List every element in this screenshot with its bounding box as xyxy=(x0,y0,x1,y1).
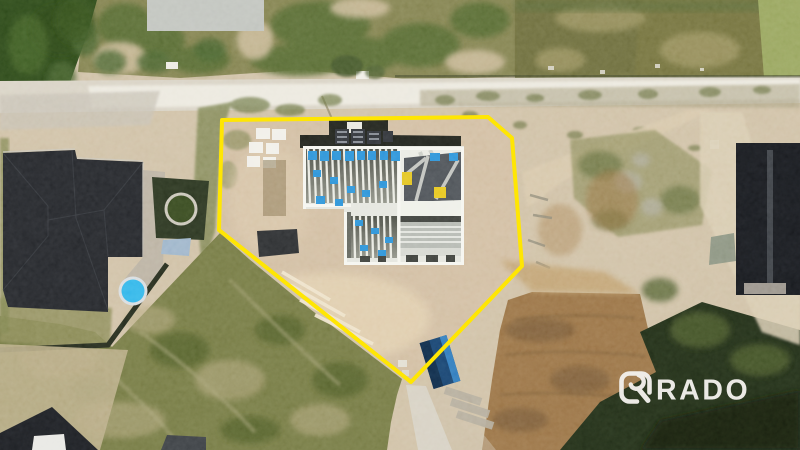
svg-text:RADO: RADO xyxy=(656,375,750,407)
